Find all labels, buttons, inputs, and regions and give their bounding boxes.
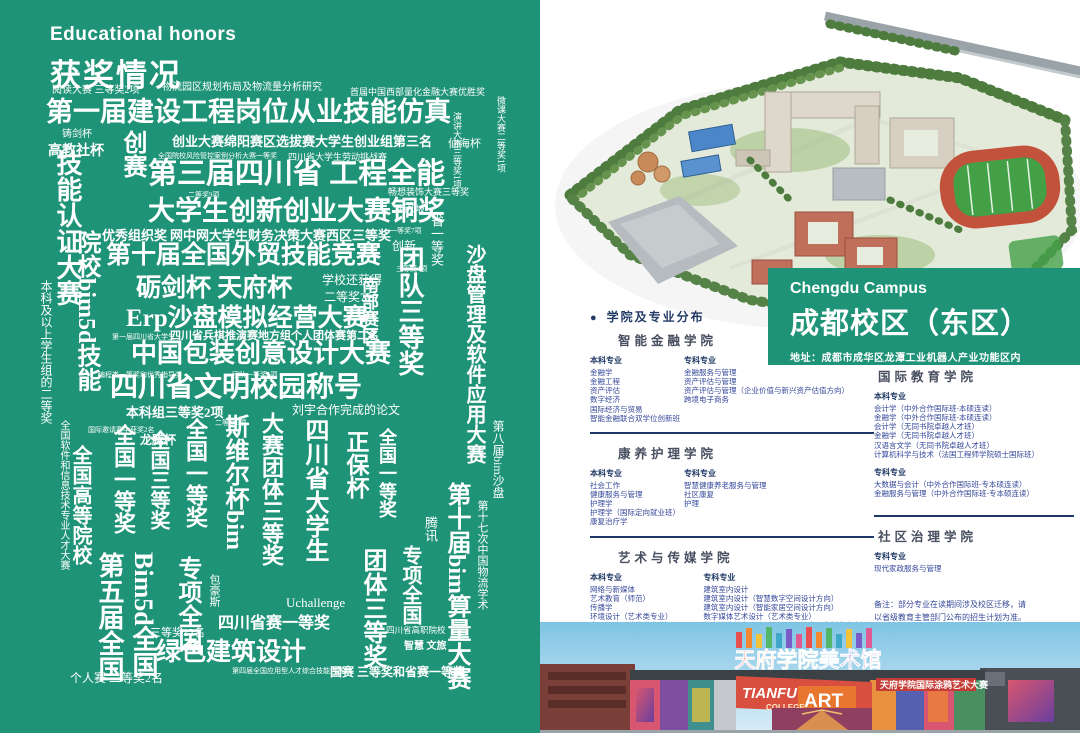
major-item: 国际经济与贸易	[590, 405, 678, 414]
major-item: 建筑室内设计（智能家居空间设计方向）	[703, 603, 868, 612]
cloud-word: 砺剑杯 天府杯	[136, 276, 292, 301]
cloud-word: 第十届全国外贸技能竞赛	[106, 243, 381, 268]
major-item: 大数据与会计（中外合作国际班-专本硕连读）	[874, 480, 1068, 489]
cloud-word: 中国包装创意设计大赛	[131, 341, 391, 367]
rooftop-sign-text: 天府学院美术馆	[735, 648, 882, 672]
cloud-word: 创业大赛绵阳赛区选拔赛大学生创业组第三名	[172, 135, 432, 148]
bullet-icon: ●	[590, 312, 599, 324]
college-section: 国际教育学院本科专业会计学（中外合作国际班-本硕连读）金融学（中外合作国际班-本…	[874, 366, 1074, 517]
major-item: 会计学（中外合作国际班-本硕连读）	[874, 404, 1068, 413]
college-name: 社区治理学院	[874, 526, 1074, 545]
degree-level-label: 本科专业	[590, 355, 678, 366]
cloud-word: 四川省赛一等奖	[218, 616, 330, 632]
cloud-word: 首届中国西部量化金融大赛优胜奖	[350, 88, 485, 97]
cloud-word: 新加坡	[398, 205, 425, 214]
cloud-word: 三等奖12名	[150, 628, 205, 639]
college-name: 艺术与传媒学院	[590, 547, 874, 566]
cloud-word: 全国软件和信息技术专业人才大赛	[58, 420, 68, 570]
major-item: 汉语言文学（无同书院卓越人才班）	[874, 441, 1068, 450]
cloud-word: Uchallenge	[286, 596, 345, 609]
cloud-word: 全国一等奖	[184, 418, 206, 528]
cloud-word: Erp沙盘模拟经营大赛	[126, 306, 368, 331]
majors-column-right: 国际教育学院本科专业会计学（中外合作国际班-本硕连读）金融学（中外合作国际班-本…	[874, 366, 1074, 625]
major-item: 社会工作	[590, 481, 678, 490]
major-item: 金融学（无同书院卓越人才班）	[874, 431, 1068, 440]
cloud-word: 正保杯	[344, 430, 367, 499]
cloud-word: 网中网大学生财务决策大赛西区三等奖	[170, 229, 391, 242]
cloud-word: 第五届全国	[96, 552, 122, 682]
cloud-word: 四川省大学生	[302, 418, 326, 562]
cloud-word: 沙盘管理及软件应用大赛	[464, 244, 484, 464]
cloud-word: 省一等奖	[430, 214, 443, 266]
major-item: 资产评估与管理	[684, 377, 849, 386]
brochure-spread: Educational honors 获奖情况 阅读大赛 三等奖2项物流园区规划…	[0, 0, 1080, 733]
section-header-label: 学院及专业分布	[607, 310, 705, 324]
major-item: 数字媒体艺术设计（艺术类专业）	[703, 612, 868, 621]
degree-level-label: 专科专业	[874, 551, 1068, 562]
campus-banner: Chengdu Campus 成都校区（东区） 地址：成都市成华区龙潭工业机器人…	[768, 268, 1080, 365]
cloud-word: 绿色建筑设计	[156, 640, 306, 665]
cloud-word: 院校bim5d技能	[74, 230, 98, 391]
major-item: 网络与新媒体	[590, 585, 697, 594]
cloud-word: 本科及以上学生组的二等奖	[40, 280, 52, 424]
major-item: 智能金融联合双学位创新班	[590, 414, 678, 423]
svg-text:TIANFU: TIANFU	[742, 685, 798, 702]
major-item: 建筑室内设计（智慧数字空间设计方向）	[703, 594, 868, 603]
cloud-word: 智慧 文旅	[404, 642, 447, 652]
cloud-word: 刘宇合作完成的论文	[292, 404, 400, 416]
cloud-word: 全国一等奖	[112, 424, 134, 534]
major-item: 金融学（中外合作国际班-本硕连读）	[874, 413, 1068, 422]
major-item: 护理	[684, 499, 767, 508]
major-item: 康复治疗学	[590, 517, 678, 526]
campus-name-zh: 成都校区（东区）	[790, 300, 1080, 342]
cloud-word: 国赛 三等奖和省赛一等奖	[330, 666, 465, 678]
college-name: 国际教育学院	[874, 366, 1074, 385]
degree-level-label: 专科专业	[684, 468, 767, 479]
campus-name-en: Chengdu Campus	[790, 280, 1080, 298]
cloud-word: 四川省高职院校	[386, 626, 446, 635]
cloud-word: 演讲大赛三等奖1项	[452, 112, 461, 189]
major-item: 护理学	[590, 499, 678, 508]
cloud-word: 第八届bim沙盘	[492, 420, 504, 499]
cloud-word: 第四届全国应用型人才综合技能大赛	[232, 668, 344, 675]
major-item: 金融服务与管理（中外合作国际班-专本硕连读）	[874, 489, 1068, 498]
cloud-word: 阅读大赛 三等奖2项	[52, 86, 140, 96]
mountain-mural	[772, 708, 872, 733]
major-item: 计算机科学与技术（法国工程师学院硕士国际班）	[874, 450, 1068, 459]
cloud-word: 四川省文明校园称号	[110, 374, 362, 402]
college-section: 康养护理学院本科专业社会工作健康服务与管理护理学护理学（国际定向就业班）康复治疗…	[590, 443, 874, 538]
cloud-word: 第一届建设工程岗位从业技能仿真	[46, 99, 451, 126]
section-header: ●学院及专业分布	[590, 308, 705, 325]
major-item: 数字经济	[590, 395, 678, 404]
major-item: 社区康复	[684, 490, 767, 499]
cloud-word: Bim5d全国	[130, 552, 156, 678]
major-item: 金融工程	[590, 377, 678, 386]
cloud-word: 全国高等院校	[70, 445, 90, 565]
major-item: 环境设计（艺术类专业）	[590, 612, 697, 621]
cloud-word: 第十七次中国物流学术	[476, 500, 487, 610]
cloud-word: 南部赛区	[360, 276, 377, 344]
majors-column-left: 智能金融学院本科专业金融学金融工程资产评估数字经济国际经济与贸易智能金融联合双学…	[590, 330, 874, 671]
cloud-word: 铸剑杯	[62, 130, 92, 140]
major-item: 现代家政服务与管理	[874, 564, 1068, 573]
degree-level-label: 专科专业	[874, 467, 1068, 478]
cloud-word: 团队三等奖	[396, 246, 422, 376]
major-item: 金融服务与管理	[684, 368, 849, 377]
award-word-cloud: 阅读大赛 三等奖2项物流园区规划布局及物流量分析研究首届中国西部量化金融大赛优胜…	[0, 0, 540, 733]
cloud-word: 创赛	[120, 130, 144, 178]
degree-level-label: 专科专业	[703, 572, 868, 583]
cloud-word: 优秀组织奖	[102, 229, 167, 242]
major-item: 建筑室内设计	[703, 585, 868, 594]
major-item: 智慧健康养老服务与管理	[684, 481, 767, 490]
cloud-word: 团体三等奖	[360, 548, 384, 668]
college-section: 社区治理学院专科专业现代家政服务与管理	[874, 526, 1074, 573]
degree-level-label: 本科专业	[874, 391, 1068, 402]
cloud-word: 专项全国	[400, 545, 420, 625]
cloud-word: 第三届四川省 工程全能	[148, 160, 445, 189]
major-item: 金融学	[590, 368, 678, 377]
major-item: 健康服务与管理	[590, 490, 678, 499]
major-item: 艺术教育（师范）	[590, 594, 697, 603]
cloud-word: 斯维尔杯bim	[222, 414, 246, 550]
cloud-word: 本科组三等奖2项	[126, 406, 224, 419]
cloud-word: 全国三等奖	[148, 430, 168, 530]
cloud-word: 一等奖7项	[390, 228, 422, 235]
degree-level-label: 本科专业	[590, 572, 697, 583]
cloud-word: 包豪斯	[208, 574, 219, 607]
left-page-honors: Educational honors 获奖情况 阅读大赛 三等奖2项物流园区规划…	[0, 0, 540, 733]
art-college-photo: 天府学院美术馆 TIANFU COLLEGE	[540, 622, 1080, 733]
cloud-word: 腾讯	[424, 516, 437, 542]
cloud-word: 微课大赛二等奖1项	[496, 96, 505, 173]
campus-address: 地址：成都市成华区龙潭工业机器人产业功能区内	[790, 349, 1080, 364]
degree-level-label: 本科专业	[590, 468, 678, 479]
right-page-campus: Chengdu Campus 成都校区（东区） 地址：成都市成华区龙潭工业机器人…	[540, 0, 1080, 733]
college-name: 康养护理学院	[590, 443, 874, 462]
cloud-word: 大赛团体三等奖	[260, 412, 282, 566]
major-item: 传播学	[590, 603, 697, 612]
cloud-word: 全国一等奖	[378, 428, 396, 518]
cloud-word: 物流园区规划布局及物流量分析研究	[162, 83, 322, 93]
major-item: 跨境电子商务	[684, 395, 849, 404]
cloud-word: 个人赛 二等奖2名	[70, 672, 163, 684]
svg-text:天府学院国际涂鸦艺术大赛: 天府学院国际涂鸦艺术大赛	[880, 679, 989, 690]
cloud-word: 第十届bim算量大赛	[444, 482, 468, 690]
